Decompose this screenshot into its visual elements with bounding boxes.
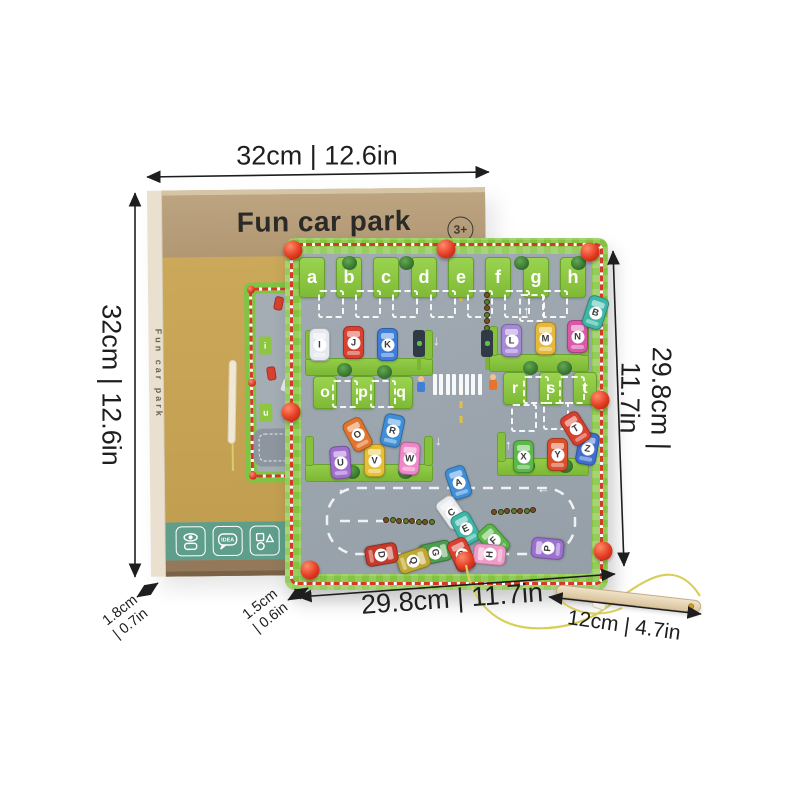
eye-and-toy-icon [176,526,206,556]
dim-board-height: 29.8cm | 11.7in [613,320,678,476]
car-letter-badge: N [571,330,584,343]
pins-layer [285,238,608,590]
car-letter-badge: X [517,450,530,463]
printed-pin [247,286,255,294]
box-title: Fun car park [162,204,485,239]
magnet-pin [282,403,301,422]
traffic-light-icon [481,330,493,357]
printed-tab-u: u [259,403,272,421]
magnet-pin [284,241,303,260]
shapes-icon [250,525,280,555]
dim-box-depth: 1.8cm | 0.7in [100,592,153,644]
idea-bubble-icon: IDEA [213,526,243,556]
wand-magnet-tip [688,603,695,610]
magnet-pin [591,391,610,410]
traffic-light-icon [413,330,425,357]
magnet-pin [581,243,600,262]
box-side-title: Fun car park [149,329,164,419]
dim-wand-length: 12cm | 4.7in [566,606,682,646]
game-board: a b c d e f g h o p q r s t [285,238,608,590]
magnet-pin [437,240,456,259]
car-letter-badge: K [381,338,394,351]
idea-label: IDEA [221,537,234,543]
magnet-pin [301,561,320,580]
printed-wand-artwork [228,360,237,444]
car-letter-badge: L [505,334,518,347]
printed-car [266,366,277,381]
car-letter-badge: V [368,454,381,467]
car-letter-badge: M [539,332,552,345]
magnet-pin [456,552,475,571]
dim-width-top: 32cm | 12.6in [236,141,398,172]
product-photo-stage: Fun car park Fun car park 3+ i u [0,0,800,800]
dim-height-left: 32cm | 12.6in [96,304,127,466]
printed-pin [248,379,256,387]
printed-tab-i: i [259,336,272,354]
magnet-pin [594,542,613,561]
dim-board-depth: 1.5cm | 0.6in [240,586,293,638]
car-letter-badge: Y [551,448,564,461]
printed-pin [249,472,257,480]
car-letter-badge: I [313,338,326,351]
printed-string-artwork [232,443,234,471]
car-letter-badge: J [347,336,360,349]
